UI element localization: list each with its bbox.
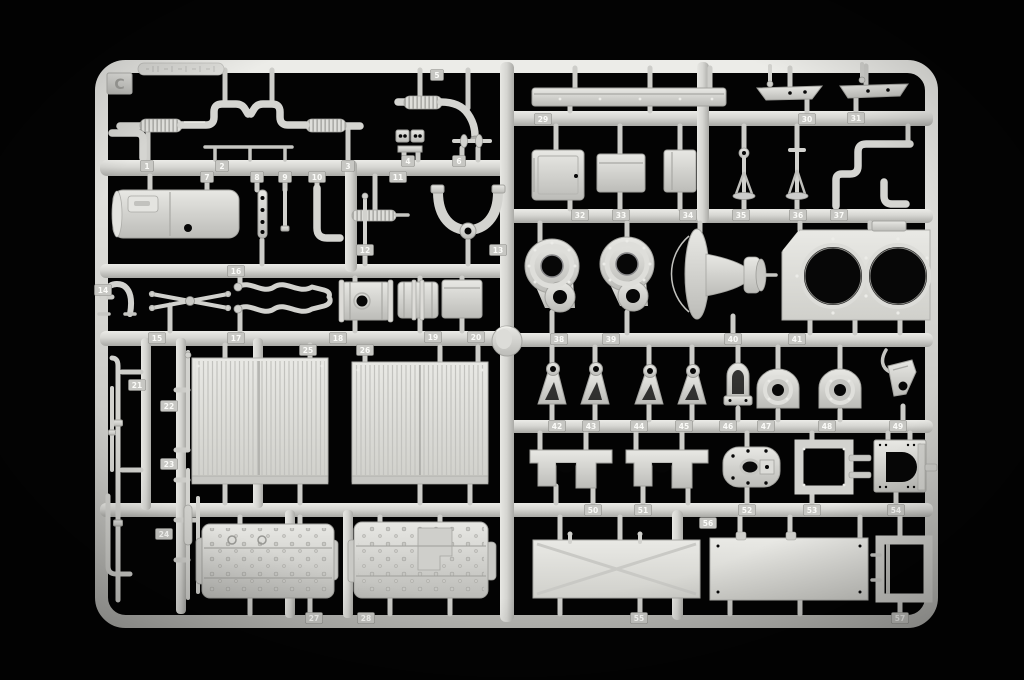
photo-vignette — [0, 0, 1024, 680]
model-kit-sprue-photo: C — [0, 0, 1024, 680]
sprue-canvas: C — [0, 0, 1024, 680]
